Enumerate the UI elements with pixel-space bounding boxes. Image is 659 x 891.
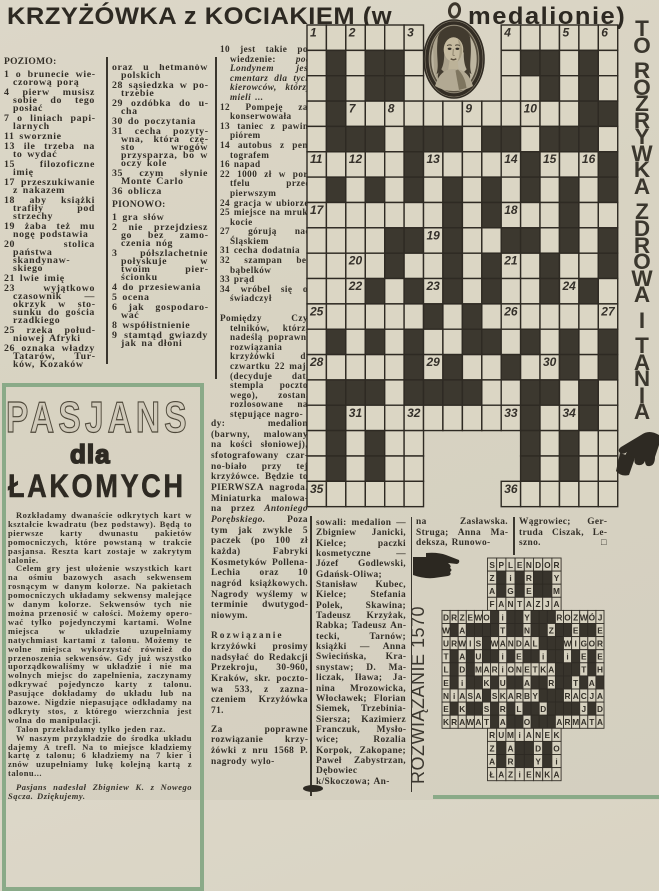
svg-text:E: E bbox=[526, 770, 532, 780]
svg-text:28: 28 bbox=[309, 355, 324, 369]
svg-text:L: L bbox=[533, 639, 538, 649]
svg-text:E: E bbox=[516, 652, 522, 662]
svg-text:22: 22 bbox=[348, 279, 363, 293]
svg-text:i: i bbox=[461, 678, 463, 688]
svg-text:Z: Z bbox=[536, 599, 541, 609]
svg-text:J: J bbox=[545, 599, 550, 609]
svg-text:T: T bbox=[517, 599, 522, 609]
svg-text:N: N bbox=[524, 625, 530, 635]
svg-text:C: C bbox=[581, 691, 587, 701]
svg-text:T: T bbox=[581, 665, 586, 675]
svg-text:3: 3 bbox=[407, 26, 414, 40]
svg-text:A: A bbox=[554, 599, 560, 609]
svg-text:B: B bbox=[524, 691, 530, 701]
svg-text:4: 4 bbox=[503, 26, 511, 40]
svg-text:A: A bbox=[508, 691, 514, 701]
svg-text:O: O bbox=[564, 612, 571, 622]
svg-text:25: 25 bbox=[309, 304, 324, 318]
svg-text:K: K bbox=[484, 678, 490, 688]
svg-text:i: i bbox=[509, 573, 511, 583]
svg-text:U: U bbox=[443, 639, 449, 649]
svg-text:W: W bbox=[580, 612, 588, 622]
svg-text:P: P bbox=[499, 560, 505, 570]
svg-text:14: 14 bbox=[504, 152, 518, 166]
svg-text:R: R bbox=[565, 691, 571, 701]
svg-text:5: 5 bbox=[563, 26, 570, 40]
svg-text:R: R bbox=[508, 756, 514, 766]
svg-text:Ł: Ł bbox=[490, 770, 495, 780]
svg-text:R: R bbox=[565, 717, 571, 727]
svg-text:D: D bbox=[459, 665, 465, 675]
svg-text:S: S bbox=[492, 691, 498, 701]
svg-text:W: W bbox=[458, 639, 466, 649]
svg-text:T: T bbox=[500, 625, 505, 635]
svg-text:H: H bbox=[597, 665, 603, 675]
svg-text:21: 21 bbox=[503, 254, 518, 268]
svg-text:A: A bbox=[554, 770, 560, 780]
svg-text:Y: Y bbox=[524, 612, 530, 622]
svg-text:E: E bbox=[468, 612, 474, 622]
svg-text:33: 33 bbox=[504, 406, 518, 420]
svg-text:A: A bbox=[500, 639, 506, 649]
svg-text:M: M bbox=[553, 586, 560, 596]
svg-text:A: A bbox=[475, 717, 481, 727]
svg-text:32: 32 bbox=[407, 406, 421, 420]
svg-text:A: A bbox=[597, 691, 603, 701]
svg-text:R: R bbox=[554, 560, 560, 570]
svg-text:29: 29 bbox=[426, 355, 441, 369]
svg-text:A: A bbox=[573, 691, 579, 701]
svg-text:23: 23 bbox=[426, 279, 441, 293]
svg-text:A: A bbox=[581, 717, 587, 727]
svg-text:A: A bbox=[508, 743, 514, 753]
svg-text:18: 18 bbox=[504, 203, 518, 217]
svg-text:A: A bbox=[589, 678, 595, 688]
svg-text:E: E bbox=[524, 665, 530, 675]
svg-text:D: D bbox=[535, 560, 541, 570]
svg-text:O: O bbox=[553, 743, 560, 753]
svg-text:R: R bbox=[451, 639, 457, 649]
svg-text:U: U bbox=[500, 678, 506, 688]
svg-text:E: E bbox=[597, 652, 603, 662]
svg-text:A: A bbox=[459, 691, 465, 701]
svg-text:E: E bbox=[597, 625, 603, 635]
svg-text:15: 15 bbox=[543, 152, 557, 166]
svg-text:U: U bbox=[475, 652, 481, 662]
svg-text:R: R bbox=[492, 665, 498, 675]
svg-text:F: F bbox=[490, 599, 495, 609]
svg-text:K: K bbox=[554, 730, 560, 740]
svg-text:19: 19 bbox=[427, 228, 441, 242]
svg-text:Z: Z bbox=[490, 573, 495, 583]
svg-text:K: K bbox=[544, 770, 550, 780]
svg-text:35: 35 bbox=[310, 482, 324, 496]
svg-text:W: W bbox=[491, 639, 499, 649]
svg-text:E: E bbox=[517, 560, 523, 570]
svg-text:10: 10 bbox=[524, 102, 538, 116]
svg-text:Y: Y bbox=[532, 691, 538, 701]
svg-text:N: N bbox=[535, 730, 541, 740]
svg-text:M: M bbox=[507, 730, 514, 740]
svg-text:R: R bbox=[451, 717, 457, 727]
svg-text:R: R bbox=[597, 639, 603, 649]
svg-text:8: 8 bbox=[388, 102, 395, 116]
svg-text:M: M bbox=[572, 717, 579, 727]
svg-text:D: D bbox=[597, 704, 603, 714]
svg-text:i: i bbox=[519, 770, 521, 780]
svg-text:Z: Z bbox=[460, 612, 465, 622]
svg-text:A: A bbox=[524, 678, 530, 688]
svg-text:O: O bbox=[544, 560, 551, 570]
svg-text:E: E bbox=[573, 625, 579, 635]
svg-text:S: S bbox=[489, 560, 495, 570]
svg-text:Y: Y bbox=[535, 756, 541, 766]
svg-text:i: i bbox=[502, 665, 504, 675]
svg-text:O: O bbox=[589, 639, 596, 649]
svg-text:i: i bbox=[555, 756, 557, 766]
svg-text:L: L bbox=[508, 560, 513, 570]
svg-text:i: i bbox=[519, 730, 521, 740]
svg-text:Z: Z bbox=[490, 743, 495, 753]
svg-text:A: A bbox=[498, 599, 504, 609]
svg-text:N: N bbox=[526, 560, 532, 570]
svg-text:36: 36 bbox=[504, 482, 518, 496]
svg-text:R: R bbox=[451, 612, 457, 622]
svg-text:A: A bbox=[489, 586, 495, 596]
svg-text:T: T bbox=[443, 652, 448, 662]
svg-text:K: K bbox=[500, 691, 506, 701]
svg-text:i: i bbox=[453, 691, 455, 701]
svg-text:E: E bbox=[581, 652, 587, 662]
svg-text:1: 1 bbox=[310, 26, 317, 40]
svg-text:17: 17 bbox=[310, 203, 325, 217]
svg-text:K: K bbox=[459, 704, 465, 714]
svg-text:11: 11 bbox=[310, 152, 323, 166]
svg-text:6: 6 bbox=[601, 26, 608, 40]
svg-text:Z: Z bbox=[573, 612, 578, 622]
svg-text:D: D bbox=[540, 704, 546, 714]
svg-text:D: D bbox=[535, 743, 541, 753]
svg-text:N: N bbox=[508, 599, 514, 609]
svg-text:A: A bbox=[524, 639, 530, 649]
svg-text:A: A bbox=[484, 665, 490, 675]
svg-text:16: 16 bbox=[582, 152, 596, 166]
svg-text:A: A bbox=[500, 717, 506, 727]
svg-text:G: G bbox=[581, 639, 587, 649]
svg-text:A: A bbox=[459, 652, 465, 662]
svg-text:M: M bbox=[475, 665, 482, 675]
svg-text:T: T bbox=[573, 678, 578, 688]
svg-text:R: R bbox=[500, 704, 506, 714]
svg-text:I: I bbox=[575, 639, 577, 649]
svg-text:Ó: Ó bbox=[589, 611, 596, 622]
svg-text:S: S bbox=[468, 691, 474, 701]
svg-text:K: K bbox=[443, 717, 449, 727]
svg-text:i: i bbox=[502, 612, 504, 622]
svg-text:S: S bbox=[484, 704, 490, 714]
svg-text:A: A bbox=[459, 717, 465, 727]
svg-text:Z: Z bbox=[549, 625, 554, 635]
svg-text:E: E bbox=[545, 730, 551, 740]
svg-text:E: E bbox=[526, 586, 532, 596]
svg-text:L: L bbox=[516, 704, 521, 714]
svg-text:34: 34 bbox=[563, 406, 577, 420]
svg-text:R: R bbox=[526, 573, 532, 583]
svg-text:13: 13 bbox=[427, 152, 441, 166]
svg-text:R: R bbox=[489, 730, 495, 740]
svg-text:26: 26 bbox=[503, 304, 518, 318]
svg-text:W: W bbox=[564, 639, 572, 649]
svg-text:L: L bbox=[443, 665, 448, 675]
svg-text:A: A bbox=[526, 599, 532, 609]
svg-text:T: T bbox=[484, 717, 489, 727]
svg-text:12: 12 bbox=[349, 152, 363, 166]
svg-text:i: i bbox=[566, 652, 568, 662]
svg-text:i: i bbox=[502, 652, 504, 662]
svg-text:J: J bbox=[598, 612, 603, 622]
svg-text:Y: Y bbox=[554, 573, 560, 583]
svg-text:E: E bbox=[443, 678, 449, 688]
svg-text:N: N bbox=[535, 770, 541, 780]
svg-text:O: O bbox=[483, 612, 490, 622]
svg-text:O: O bbox=[524, 717, 531, 727]
svg-text:Z: Z bbox=[508, 770, 513, 780]
svg-text:J: J bbox=[589, 691, 594, 701]
svg-text:A: A bbox=[459, 625, 465, 635]
svg-text:R: R bbox=[556, 612, 562, 622]
svg-text:W: W bbox=[442, 625, 450, 635]
svg-text:31: 31 bbox=[349, 406, 363, 420]
svg-text:K: K bbox=[540, 665, 546, 675]
svg-text:A: A bbox=[489, 756, 495, 766]
svg-text:A: A bbox=[597, 717, 603, 727]
svg-text:A: A bbox=[475, 691, 481, 701]
svg-text:N: N bbox=[508, 639, 514, 649]
svg-text:20: 20 bbox=[348, 254, 363, 268]
svg-text:J: J bbox=[581, 704, 586, 714]
svg-text:D: D bbox=[516, 639, 522, 649]
svg-text:i: i bbox=[542, 652, 544, 662]
svg-text:T: T bbox=[533, 665, 538, 675]
svg-text:2: 2 bbox=[348, 26, 356, 40]
svg-text:A: A bbox=[498, 770, 504, 780]
svg-text:U: U bbox=[498, 730, 504, 740]
svg-text:G: G bbox=[507, 586, 513, 596]
svg-text:D: D bbox=[443, 612, 449, 622]
svg-text:A: A bbox=[526, 730, 532, 740]
svg-text:R: R bbox=[548, 678, 554, 688]
svg-text:27: 27 bbox=[600, 304, 616, 318]
svg-text:T: T bbox=[589, 717, 594, 727]
svg-text:O: O bbox=[508, 665, 515, 675]
svg-text:A: A bbox=[548, 665, 554, 675]
svg-text:I: I bbox=[469, 639, 471, 649]
svg-text:N: N bbox=[443, 691, 449, 701]
svg-text:S: S bbox=[476, 639, 482, 649]
svg-text:E: E bbox=[443, 704, 449, 714]
svg-text:W: W bbox=[474, 612, 482, 622]
svg-text:R: R bbox=[516, 691, 522, 701]
svg-text:A: A bbox=[556, 717, 562, 727]
svg-text:24: 24 bbox=[562, 279, 577, 293]
svg-text:30: 30 bbox=[543, 355, 557, 369]
svg-text:W: W bbox=[466, 717, 474, 727]
svg-text:N: N bbox=[516, 665, 522, 675]
